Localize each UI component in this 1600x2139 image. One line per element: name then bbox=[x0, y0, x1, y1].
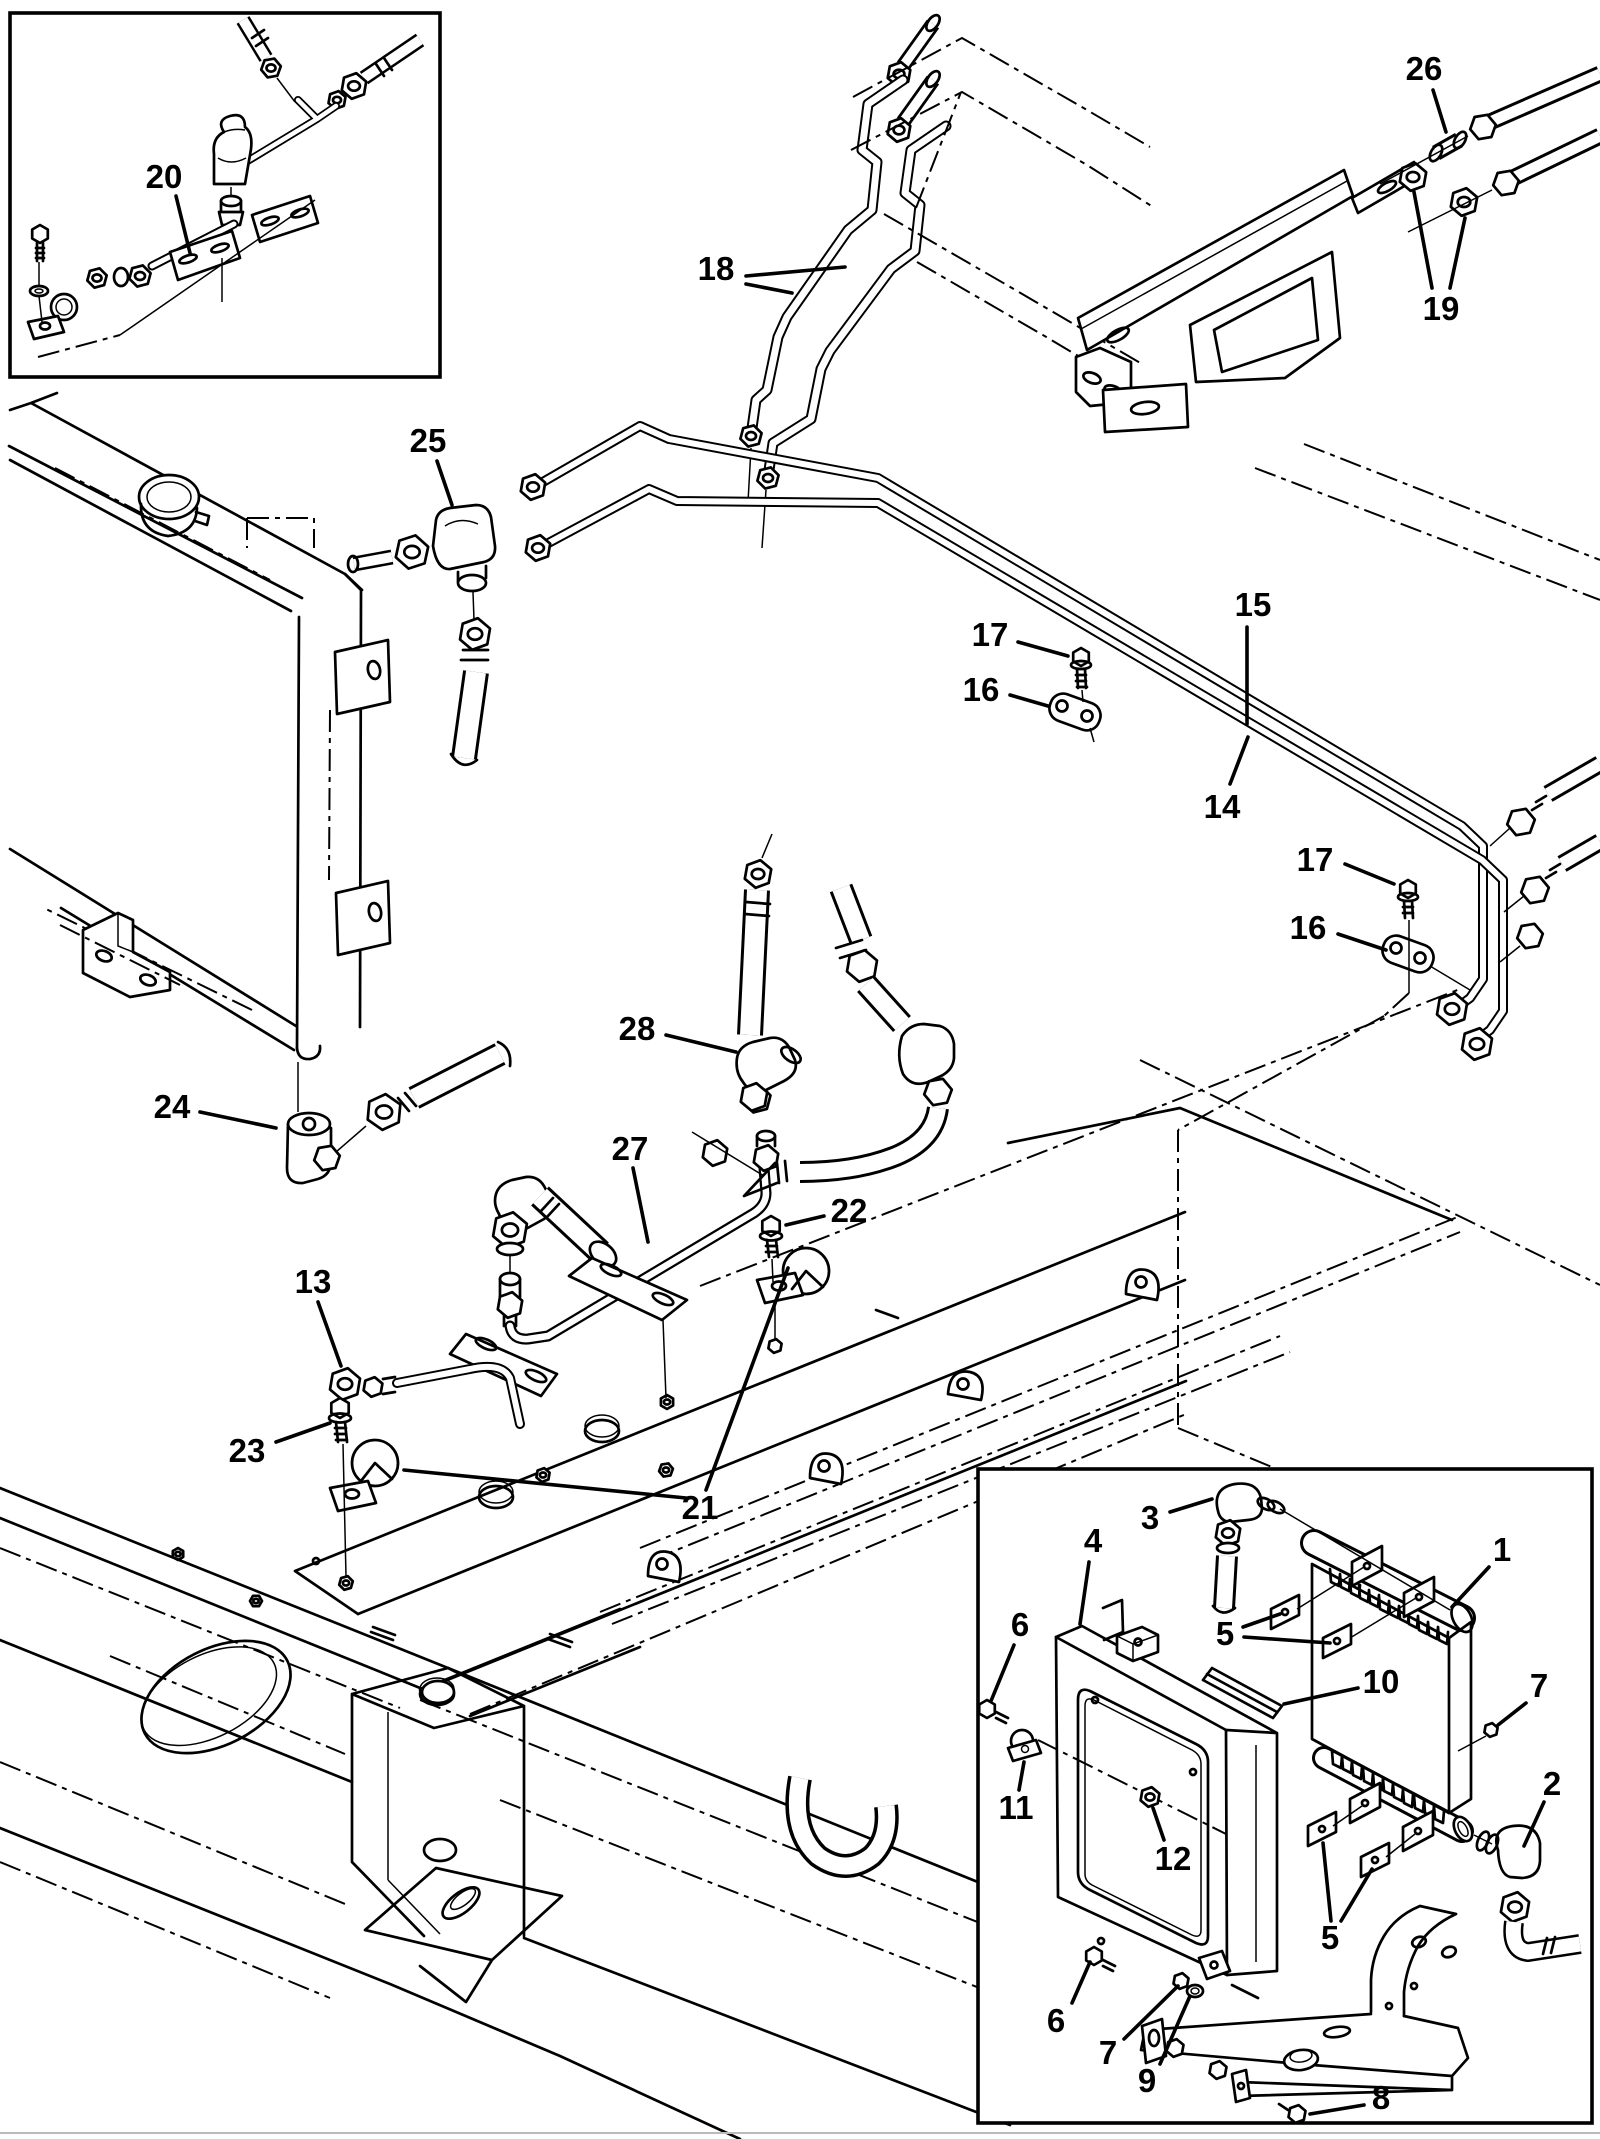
svg-text:11: 11 bbox=[999, 1789, 1034, 1826]
svg-text:20: 20 bbox=[146, 158, 183, 195]
svg-text:14: 14 bbox=[1204, 788, 1241, 825]
svg-text:8: 8 bbox=[1372, 2079, 1390, 2116]
svg-text:16: 16 bbox=[1290, 909, 1327, 946]
svg-text:22: 22 bbox=[831, 1192, 868, 1229]
svg-text:10: 10 bbox=[1363, 1663, 1400, 1700]
svg-text:24: 24 bbox=[154, 1088, 191, 1125]
svg-text:6: 6 bbox=[1047, 2002, 1065, 2039]
svg-text:5: 5 bbox=[1216, 1615, 1234, 1652]
svg-text:26: 26 bbox=[1406, 50, 1443, 87]
svg-text:17: 17 bbox=[972, 616, 1009, 653]
svg-text:7: 7 bbox=[1099, 2034, 1117, 2071]
svg-text:12: 12 bbox=[1155, 1840, 1192, 1877]
svg-text:6: 6 bbox=[1011, 1606, 1029, 1643]
svg-text:4: 4 bbox=[1084, 1522, 1103, 1559]
svg-text:5: 5 bbox=[1321, 1919, 1339, 1956]
svg-text:19: 19 bbox=[1423, 290, 1460, 327]
svg-text:15: 15 bbox=[1235, 586, 1272, 623]
svg-text:16: 16 bbox=[963, 671, 1000, 708]
svg-text:3: 3 bbox=[1141, 1499, 1159, 1536]
svg-text:2: 2 bbox=[1543, 1765, 1561, 1802]
svg-text:27: 27 bbox=[612, 1130, 649, 1167]
svg-text:13: 13 bbox=[295, 1263, 332, 1300]
svg-text:18: 18 bbox=[698, 250, 735, 287]
svg-text:21: 21 bbox=[682, 1489, 719, 1526]
svg-text:23: 23 bbox=[229, 1432, 266, 1469]
svg-text:28: 28 bbox=[619, 1010, 656, 1047]
svg-text:1: 1 bbox=[1493, 1531, 1511, 1568]
svg-text:7: 7 bbox=[1530, 1667, 1548, 1704]
svg-text:9: 9 bbox=[1138, 2062, 1156, 2099]
svg-text:25: 25 bbox=[410, 422, 447, 459]
svg-text:17: 17 bbox=[1297, 841, 1334, 878]
